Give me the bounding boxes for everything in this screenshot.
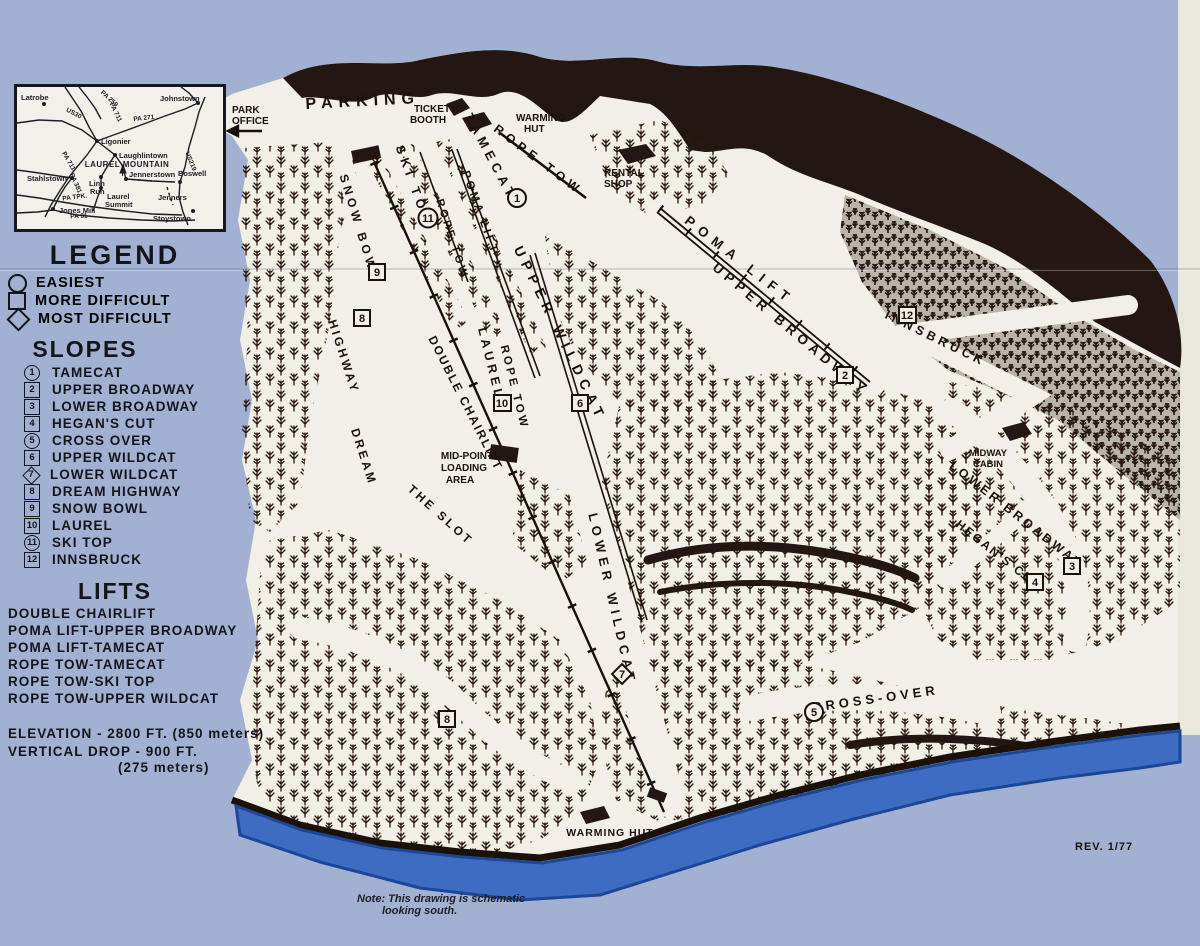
- label-rental-shop-2: SHOP: [604, 179, 633, 190]
- slope-name: UPPER BROADWAY: [52, 382, 195, 397]
- map-marker-8-lower: 8: [439, 711, 455, 727]
- slope-name: HEGAN'S CUT: [52, 416, 155, 431]
- legend-item-label: MORE DIFFICULT: [35, 293, 170, 309]
- vertical-drop-stat: VERTICAL DROP - 900 FT.: [8, 744, 198, 759]
- slope-marker-circle: 1: [24, 365, 40, 381]
- slope-row-7: 7 LOWER WILDCAT: [24, 466, 178, 483]
- label-midpoint-3: AREA: [446, 475, 474, 486]
- svg-text:8: 8: [444, 714, 450, 726]
- inset-town-run: Run: [90, 187, 105, 196]
- map-marker-9: 9: [369, 264, 385, 280]
- town-dot-ligonier: [95, 139, 99, 143]
- slope-row-5: 5 CROSS OVER: [24, 432, 152, 449]
- label-park-office-1: PARK: [232, 105, 260, 116]
- scan-edge-strip: [1178, 0, 1200, 735]
- svg-text:7: 7: [619, 669, 625, 681]
- svg-text:8: 8: [359, 313, 365, 325]
- inset-town-summit: Summit: [105, 200, 133, 209]
- map-marker-12: 12: [899, 307, 916, 323]
- road-boswell-link: [126, 179, 152, 181]
- laurel-mountain-trail-map: { "colors": { "sky_background": "#a2b1d1…: [0, 0, 1200, 946]
- slope-marker-square: 12: [24, 552, 40, 568]
- slope-row-3: 3 LOWER BROADWAY: [24, 398, 199, 415]
- lift-row-3: POMA LIFT-TAMECAT: [8, 640, 165, 655]
- label-ticket-booth-1: TICKET: [414, 104, 450, 115]
- slope-name: LOWER BROADWAY: [52, 399, 199, 414]
- label-warming-hut-top-2: HUT: [524, 124, 545, 135]
- most-difficult-diamond-icon: [6, 307, 30, 331]
- label-park-office-2: OFFICE: [232, 116, 269, 127]
- slope-name: DREAM HIGHWAY: [52, 484, 182, 499]
- easiest-circle-icon: [8, 274, 27, 293]
- lift-row-1: DOUBLE CHAIRLIFT: [8, 606, 156, 621]
- slope-row-12: 12 INNSBRUCK: [24, 551, 142, 568]
- label-rev: REV. 1/77: [1075, 841, 1133, 853]
- legend-item-easiest: EASIEST: [8, 274, 105, 292]
- label-midway-cabin-1: MIDWAY: [969, 448, 1008, 459]
- slope-name: LAUREL: [52, 518, 113, 533]
- slope-name: INNSBRUCK: [52, 552, 142, 567]
- elevation-stat: ELEVATION - 2800 FT. (850 meters): [8, 726, 264, 741]
- svg-text:9: 9: [374, 267, 380, 279]
- town-dot-jones-mill: [51, 207, 55, 211]
- label-midpoint-1: MID-POINT: [441, 451, 493, 462]
- slope-row-6: 6 UPPER WILDCAT: [24, 449, 177, 466]
- inset-road-pa-tpk: PA TPK.: [62, 192, 88, 202]
- slope-marker-square: 10: [24, 518, 40, 534]
- slope-marker-diamond: 7: [24, 468, 38, 482]
- lift-row-4: ROPE TOW-TAMECAT: [8, 657, 165, 672]
- slope-row-9: 9 SNOW BOWL: [24, 500, 148, 517]
- svg-text:10: 10: [496, 398, 508, 410]
- slope-row-4: 4 HEGAN'S CUT: [24, 415, 155, 432]
- map-marker-6: 6: [572, 395, 588, 411]
- svg-text:2: 2: [842, 370, 848, 382]
- label-midpoint-2: LOADING: [441, 463, 487, 474]
- slope-name: LOWER WILDCAT: [50, 467, 178, 482]
- lift-row-6: ROPE TOW-UPPER WILDCAT: [8, 691, 219, 706]
- map-marker-2: 2: [837, 367, 853, 383]
- lift-row-5: ROPE TOW-SKI TOP: [8, 674, 155, 689]
- town-dot-latrobe: [42, 102, 46, 106]
- slope-marker-square: 2: [24, 382, 40, 398]
- slope-row-10: 10 LAUREL: [24, 517, 113, 534]
- inset-road-pa31: PA 31: [70, 213, 88, 221]
- svg-text:11: 11: [422, 213, 434, 225]
- svg-text:6: 6: [577, 398, 583, 410]
- inset-town-laughlintown: Laughlintown: [119, 151, 168, 160]
- map-marker-11: 11: [419, 209, 438, 228]
- slope-name: SKI TOP: [52, 535, 113, 550]
- svg-text:3: 3: [1069, 561, 1075, 573]
- inset-road-pa381: PA 381: [68, 172, 83, 194]
- town-dot-boswell: [178, 180, 182, 184]
- map-marker-8-upper: 8: [354, 310, 370, 326]
- lift-row-2: POMA LIFT-UPPER BROADWAY: [8, 623, 237, 638]
- label-warming-hut-bottom: WARMING HUT: [566, 827, 653, 839]
- slope-name: SNOW BOWL: [52, 501, 148, 516]
- legend-item-label: EASIEST: [36, 275, 105, 291]
- slope-row-11: 11 SKI TOP: [24, 534, 113, 551]
- label-rental-shop-1: RENTAL: [604, 168, 644, 179]
- slope-marker-square: 6: [24, 450, 40, 466]
- lifts-title: LIFTS: [60, 578, 170, 605]
- label-warming-hut-top-1: WARMING: [516, 113, 566, 124]
- slope-name: TAMECAT: [52, 365, 123, 380]
- slope-marker-square: 9: [24, 501, 40, 517]
- slope-marker-circle: 5: [24, 433, 40, 449]
- inset-town-ligonier: Ligonier: [101, 137, 131, 146]
- slope-marker-square: 8: [24, 484, 40, 500]
- slope-marker-square: 3: [24, 399, 40, 415]
- svg-text:12: 12: [901, 310, 913, 322]
- legend-title: LEGEND: [30, 240, 200, 271]
- map-marker-5: 5: [805, 703, 823, 721]
- inset-laurel-mountain: LAUREL MOUNTAIN: [85, 160, 170, 169]
- inset-town-stoystown: Stoystown: [153, 214, 191, 223]
- slope-name: CROSS OVER: [52, 433, 152, 448]
- slope-marker-circle: 11: [24, 535, 40, 551]
- inset-town-johnstown: Johnstown: [160, 94, 200, 103]
- slope-row-8: 8 DREAM HIGHWAY: [24, 483, 182, 500]
- map-marker-10: 10: [494, 395, 511, 411]
- slope-marker-square: 4: [24, 416, 40, 432]
- slope-row-2: 2 UPPER BROADWAY: [24, 381, 195, 398]
- legend-item-more-difficult: MORE DIFFICULT: [8, 292, 170, 310]
- town-dot-jennerstown: [124, 177, 128, 181]
- slope-name: UPPER WILDCAT: [52, 450, 177, 465]
- label-note-2: looking south.: [382, 905, 457, 917]
- label-midway-cabin-2: CABIN: [973, 459, 1003, 470]
- svg-text:5: 5: [811, 707, 817, 719]
- slope-row-1: 1 TAMECAT: [24, 364, 123, 381]
- map-marker-1: 1: [508, 189, 526, 207]
- inset-road-pa711-s: PA 711: [60, 151, 77, 173]
- town-dot-stoystown: [191, 209, 195, 213]
- svg-text:1: 1: [514, 193, 520, 205]
- inset-town-stahlstown: Stahlstown: [27, 174, 67, 183]
- inset-town-jennerstown: Jennerstown: [129, 170, 176, 179]
- label-note-1: Note: This drawing is schematic: [357, 893, 525, 905]
- label-ticket-booth-2: BOOTH: [410, 115, 446, 126]
- inset-road-pa711-n: PA 711: [108, 102, 123, 124]
- svg-text:4: 4: [1032, 577, 1039, 589]
- map-marker-3: 3: [1064, 558, 1080, 574]
- inset-town-jenners: Jenners: [158, 193, 187, 202]
- town-dot-laughlintown: [113, 153, 117, 157]
- map-marker-4: 4: [1027, 574, 1043, 590]
- legend-item-most-difficult: MOST DIFFICULT: [8, 310, 172, 328]
- legend-item-label: MOST DIFFICULT: [38, 311, 172, 327]
- inset-road-map: Latrobe Johnstown Ligonier Laughlintown …: [14, 84, 226, 232]
- inset-town-latrobe: Latrobe: [21, 93, 49, 102]
- slopes-title: SLOPES: [30, 336, 140, 363]
- vertical-drop-metric: (275 meters): [118, 760, 210, 775]
